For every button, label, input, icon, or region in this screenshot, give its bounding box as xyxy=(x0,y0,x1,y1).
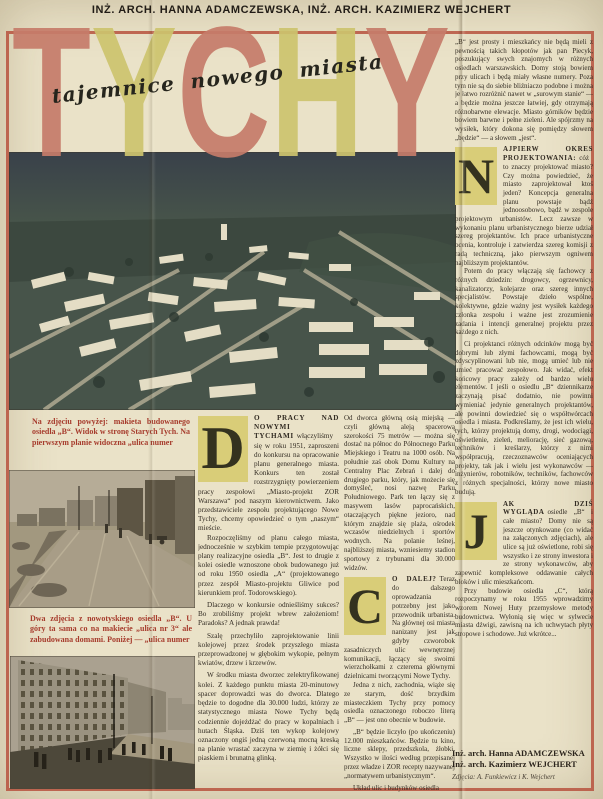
column-center-right: Od dworca główną osią miejską — czyli gł… xyxy=(344,414,455,792)
section-d: D O PRACY NAD NOWYMI TYCHAMIwłączyliśmy … xyxy=(198,414,339,534)
dropcap-j: J xyxy=(455,502,497,560)
body-paragraph: „B“ jest prosty i mieszkańcy nie będą mi… xyxy=(455,38,593,142)
article-signature: Inż. arch. Hanna ADAMCZEWSKA Inż. arch. … xyxy=(452,748,594,783)
body-paragraph: Rozpoczęliśmy od planu całego miasta, je… xyxy=(198,534,339,598)
photo-city-model-aerial xyxy=(9,152,456,410)
section-n: N AJPIERW OKRES PROJEKTOWANIA:cóż to zna… xyxy=(455,145,593,267)
body-paragraph: „B“ będzie liczyło (po ukończeniu) 12.00… xyxy=(344,728,455,781)
body-paragraph: Układ ulic i budynków osiedla xyxy=(344,784,455,792)
section-c: C O DALEJ?Teraz do dalszego oprowadzania… xyxy=(344,575,455,681)
column-right: „B“ jest prosty i mieszkańcy nie będą mi… xyxy=(455,38,593,746)
author-line: Inż. arch. Kazimierz WEJCHERT xyxy=(452,759,594,770)
body-paragraph: Od dworca główną osią miejską — czyli gł… xyxy=(344,414,455,572)
photo-street-under-construction xyxy=(9,470,195,608)
body-paragraph: Ci projektanci różnych odcinków mogą być… xyxy=(455,340,593,497)
body-paragraph: Przy budowie osiedla „C“, którą rozpoczy… xyxy=(455,587,593,639)
author-line: Inż. arch. Hanna ADAMCZEWSKA xyxy=(452,748,594,759)
section-j: J AK DZIŚ WYGLĄDAosiedle „B“ i całe mias… xyxy=(455,500,593,587)
body-paragraph: Jedna z nich, zachodnia, wiąże się ze st… xyxy=(344,681,455,725)
body-paragraph: W środku miasta dworzec zelektryfikowane… xyxy=(198,671,339,763)
body-paragraph: Potem do pracy włączają się fachowcy z r… xyxy=(455,267,593,337)
caption-street-photos: Dwa zdjęcia z nowotyskiego osiedla „B“. … xyxy=(30,614,192,645)
section-lead: O DALEJ? xyxy=(392,575,437,583)
column-center-left: D O PRACY NAD NOWYMI TYCHAMIwłączyliśmy … xyxy=(198,414,339,790)
photo-credit: Zdjęcia: A. Funkiewicz i K. Wejchert xyxy=(452,772,594,783)
body-paragraph: Szalę przechyliło zaprojektowanie linii … xyxy=(198,632,339,669)
title-letter: H xyxy=(270,10,363,162)
dropcap-d: D xyxy=(198,416,248,482)
body-paragraph: Dlaczego w konkursie odnieśliśmy sukces?… xyxy=(198,601,339,629)
title-letter: Y xyxy=(364,10,450,162)
caption-model-photo: Na zdjęciu powyżej: makieta budowanego o… xyxy=(32,417,190,448)
magazine-page: INŻ. ARCH. HANNA ADAMCZEWSKA, INŻ. ARCH.… xyxy=(0,0,603,799)
photo-street-with-people xyxy=(10,656,195,789)
dropcap-c: C xyxy=(344,577,386,635)
